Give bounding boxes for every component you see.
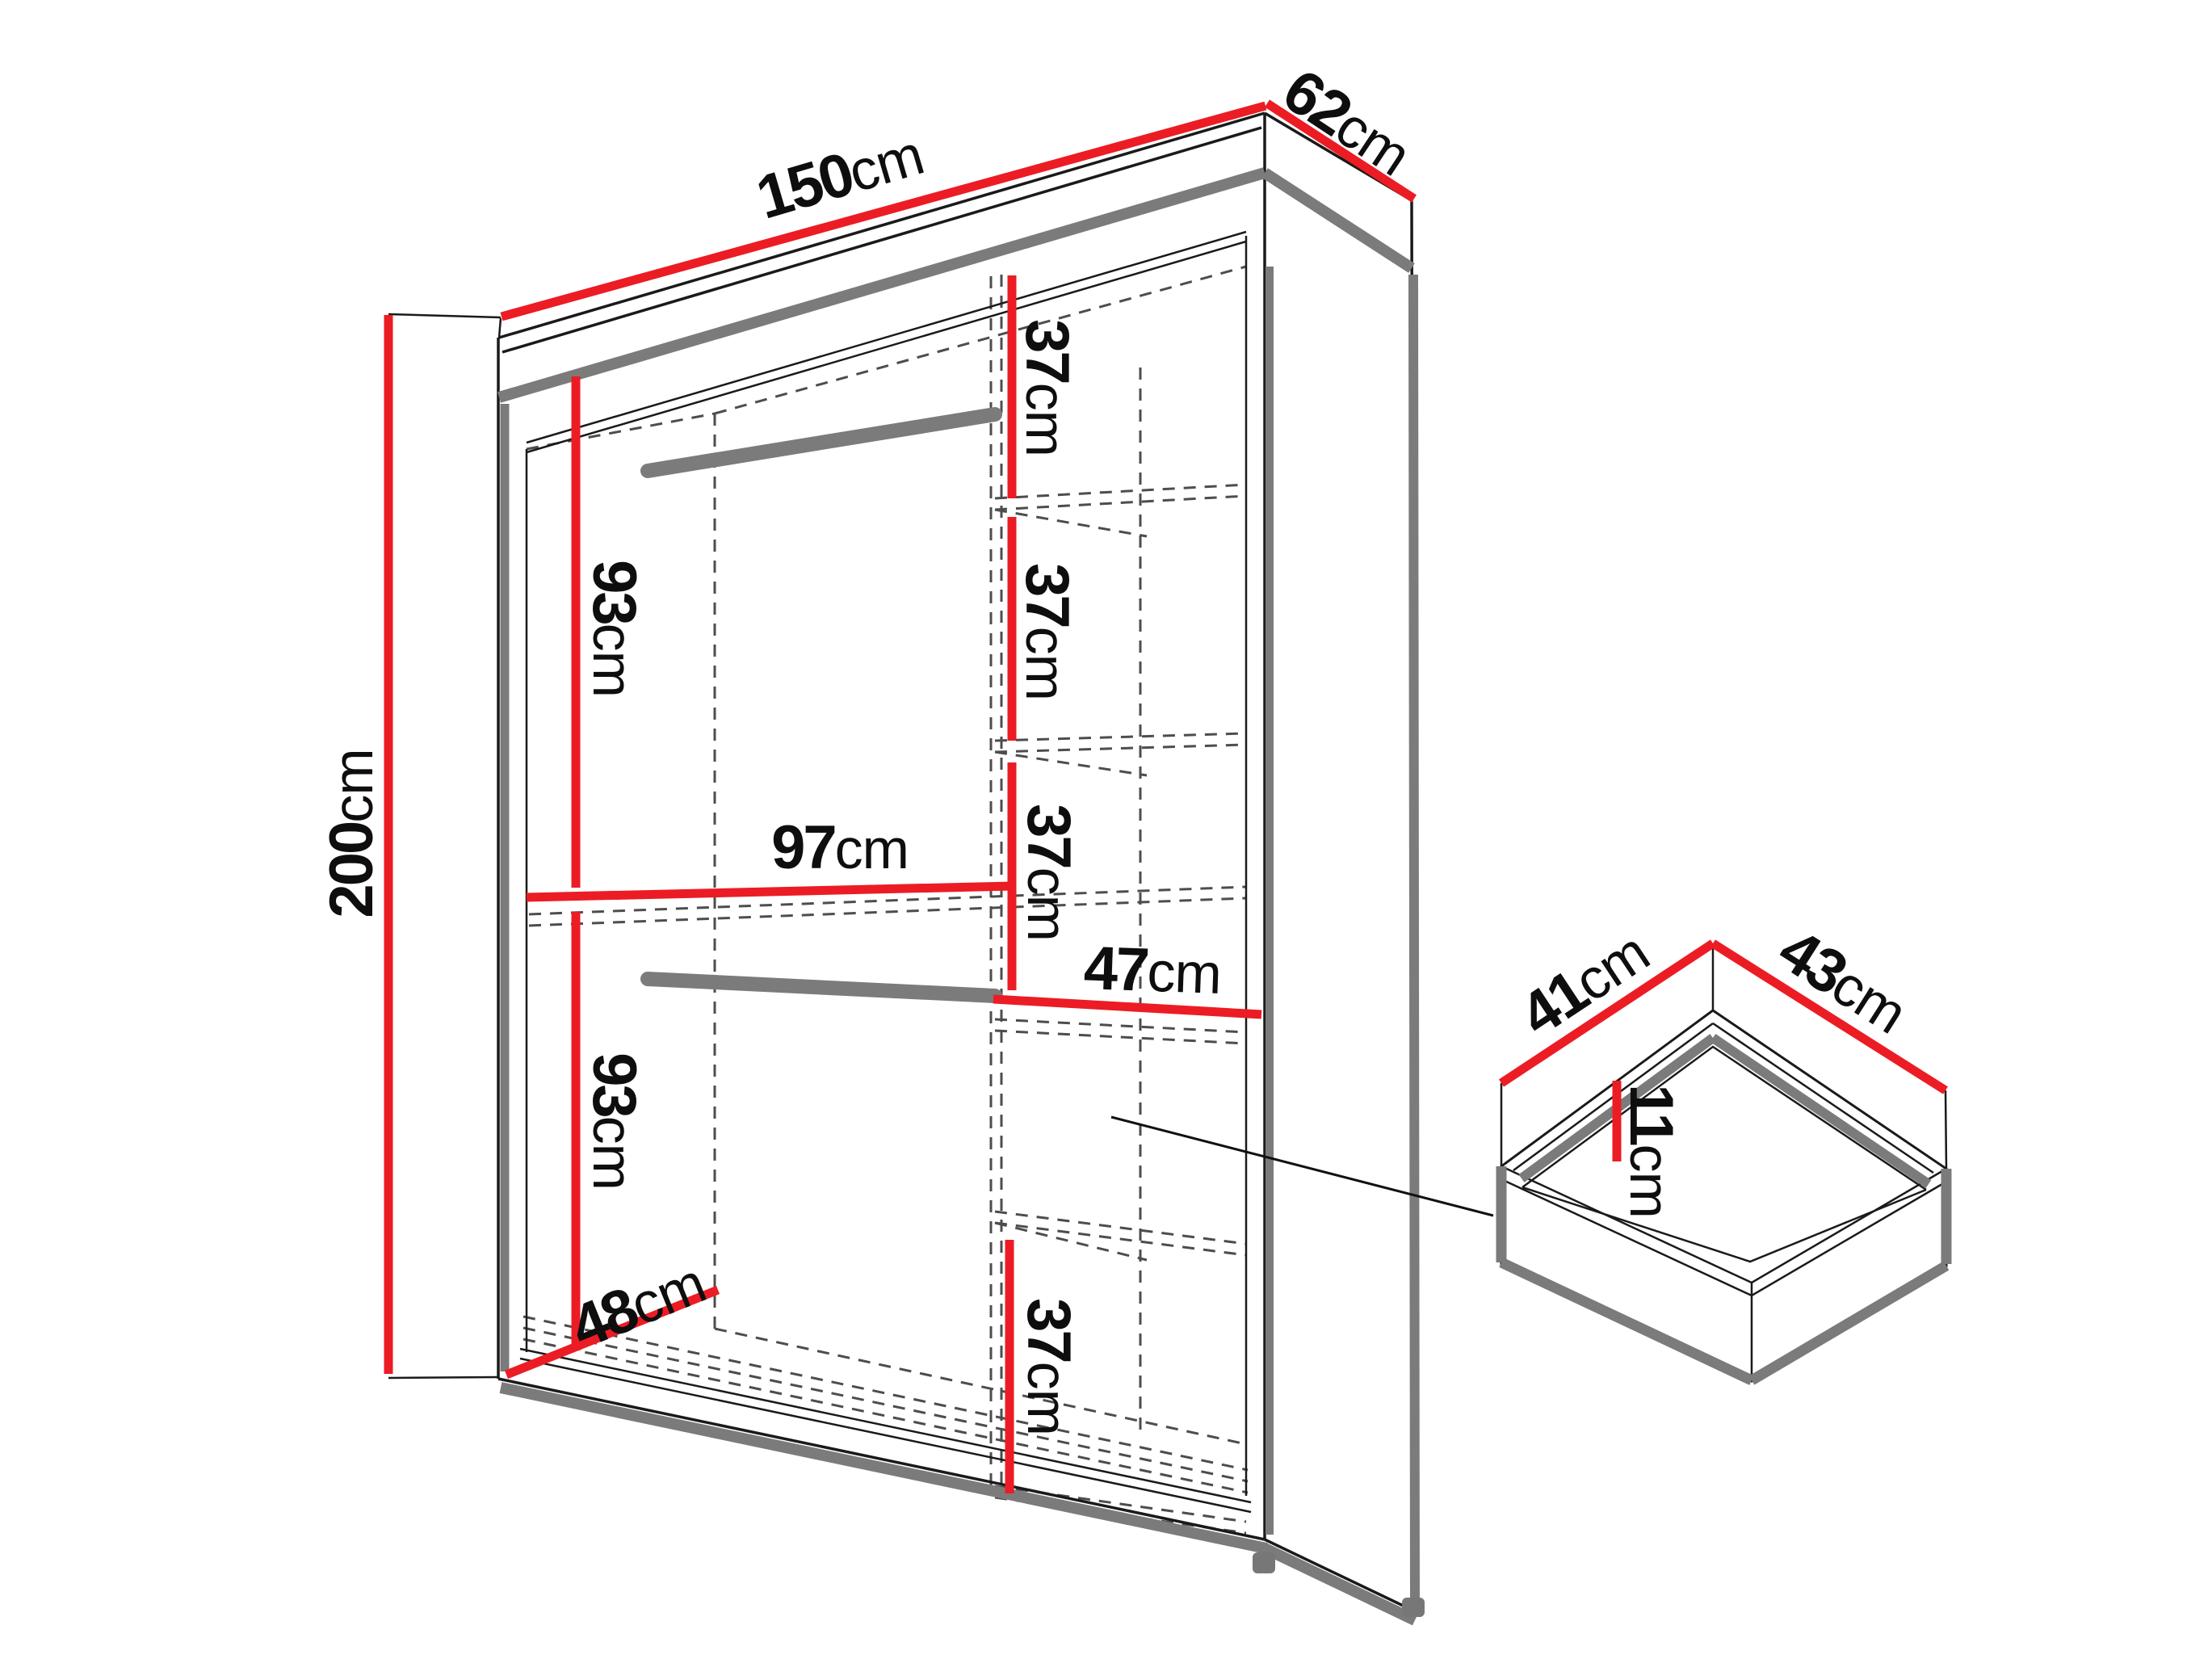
dimension-value: 93: [580, 560, 648, 624]
dimension-unit: cm: [1618, 1144, 1681, 1218]
back-right-foot: [1402, 1598, 1425, 1617]
dimension-unit: cm: [581, 1116, 644, 1190]
dimension-value: 37: [1013, 563, 1081, 627]
dimension-label-shelf-gap-4: 37cm: [1018, 1298, 1079, 1435]
dimension-label-drawer-height: 11cm: [1620, 1084, 1681, 1218]
dimension-line-interior-width: [527, 886, 1013, 897]
dimension-value: 37: [1014, 804, 1083, 867]
dimension-label-height: 200cm: [321, 749, 383, 918]
dimension-unit: cm: [1016, 867, 1079, 941]
cabinet-outline: [498, 113, 1415, 1611]
drawer-pointer-line: [1111, 1117, 1493, 1216]
dimension-unit: cm: [1146, 940, 1222, 1006]
dimension-value: 200: [317, 823, 386, 918]
dimension-label-hanging-bottom: 93cm: [583, 1052, 644, 1190]
wardrobe-diagram: 150cm 62cm 200cm 93cm 93cm 97cm 37cm 37c…: [0, 0, 2212, 1659]
dimension-unit: cm: [1014, 627, 1077, 700]
dimension-value: 37: [1013, 319, 1081, 383]
dimension-unit: cm: [835, 817, 909, 880]
dimension-label-shelf-gap-2: 37cm: [1016, 563, 1077, 700]
dimension-label-interior-width: 97cm: [771, 817, 909, 879]
dimension-lines: [388, 103, 1414, 1493]
hanging-rail-top: [648, 414, 995, 471]
dimension-unit: cm: [321, 749, 384, 822]
extension-lines: [388, 314, 501, 1378]
dimension-label-shelf-gap-3: 37cm: [1018, 804, 1079, 941]
dimension-label-shelf-width: 47cm: [1083, 938, 1222, 1004]
dimension-value: 37: [1014, 1298, 1083, 1362]
dimension-value: 47: [1083, 934, 1148, 1005]
dimension-label-shelf-gap-1: 37cm: [1016, 319, 1077, 456]
dimension-value: 97: [771, 813, 835, 882]
dimension-unit: cm: [1016, 1362, 1079, 1435]
dimension-unit: cm: [1014, 383, 1077, 456]
hanging-rail-bottom: [648, 979, 995, 996]
front-right-foot: [1253, 1552, 1275, 1573]
dimension-value: 93: [580, 1052, 648, 1116]
dimension-label-hanging-top: 93cm: [583, 560, 644, 697]
dimension-value: 11: [1617, 1084, 1685, 1144]
dimension-unit: cm: [581, 624, 644, 697]
